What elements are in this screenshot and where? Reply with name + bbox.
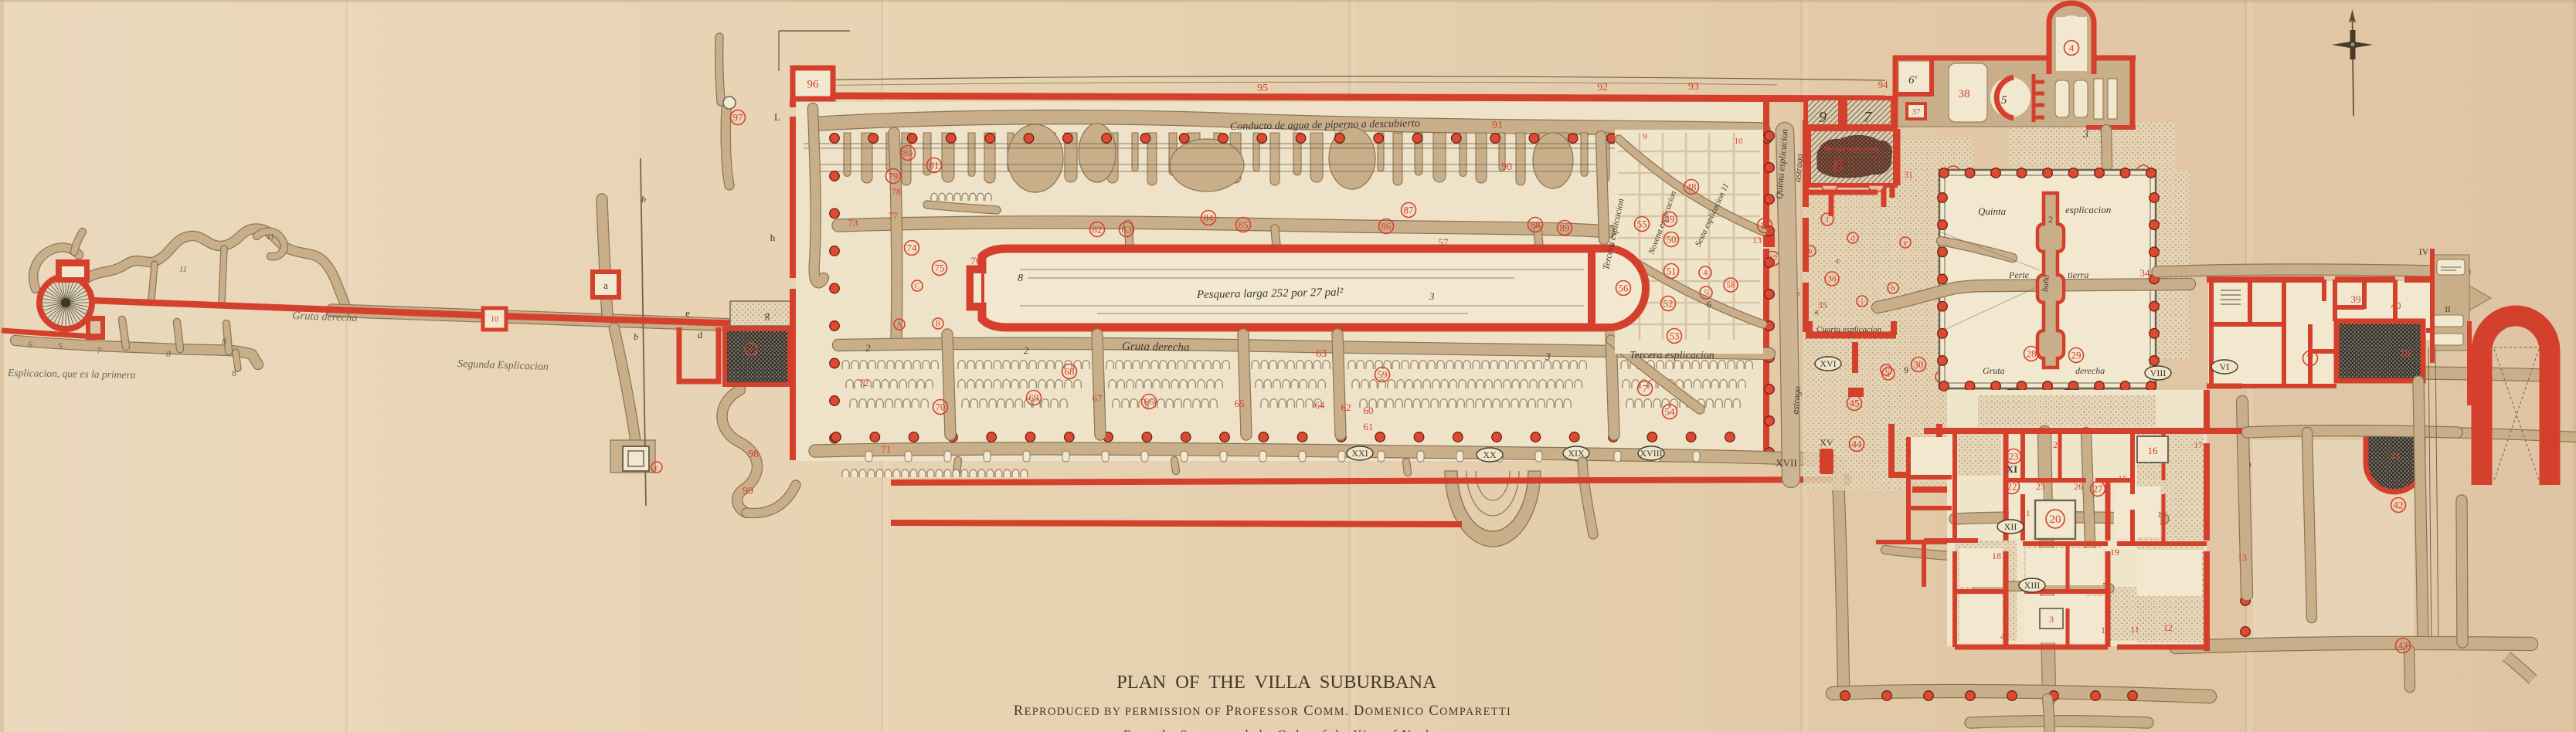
svg-text:83: 83 [1122,223,1132,235]
svg-text:45: 45 [1850,397,1860,408]
svg-text:29: 29 [2071,349,2082,361]
svg-text:69: 69 [1029,391,1039,403]
svg-text:XIII: XIII [2024,580,2041,591]
svg-text:9: 9 [1904,364,1908,375]
svg-text:52: 52 [1664,297,1674,309]
svg-text:12: 12 [1760,219,1770,231]
svg-text:8: 8 [166,348,171,359]
svg-text:8: 8 [1833,154,1843,176]
svg-text:37: 37 [1912,107,1922,117]
svg-text:39: 39 [2351,293,2361,305]
svg-text:26: 26 [2074,481,2083,492]
svg-text:d: d [1851,234,1855,242]
svg-text:54: 54 [1665,405,1676,417]
svg-text:49: 49 [1665,213,1675,225]
svg-text:2: 2 [865,342,871,354]
svg-text:V: V [2306,352,2314,364]
svg-text:tierra: tierra [2068,269,2088,280]
svg-text:73: 73 [848,217,858,229]
svg-text:84: 84 [1204,212,1215,223]
svg-text:baño: baño [2041,274,2051,292]
svg-text:e: e [685,307,690,319]
svg-text:14: 14 [2157,509,2166,520]
svg-text:VIII: VIII [2150,368,2166,378]
svg-text:13: 13 [2238,552,2247,563]
svg-text:72: 72 [859,377,869,388]
svg-text:c: c [1837,256,1840,266]
svg-text:22: 22 [2007,480,2017,492]
svg-text:From the Survey made by Order: From the Survey made by Order of the Kin… [1123,727,1442,732]
svg-text:1: 1 [1825,215,1830,225]
svg-text:85: 85 [1239,219,1249,230]
svg-text:A: A [896,320,902,329]
svg-text:76: 76 [971,255,982,266]
svg-text:35: 35 [1818,300,1827,310]
svg-text:5: 5 [1704,289,1708,298]
svg-text:XVII: XVII [1776,457,1796,469]
svg-text:36: 36 [1828,275,1837,284]
svg-text:66: 66 [1144,395,1155,407]
svg-text:XV: XV [1820,437,1833,448]
svg-text:IV: IV [2419,246,2429,257]
svg-text:b: b [634,331,638,342]
svg-text:28: 28 [2027,347,2037,359]
svg-text:61: 61 [1364,421,1374,432]
svg-text:90: 90 [1501,161,1512,173]
svg-text:89: 89 [1560,222,1570,233]
svg-text:Perte: Perte [2008,269,2030,280]
svg-text:a: a [603,280,608,291]
svg-text:41: 41 [2390,452,2401,463]
svg-text:20: 20 [2050,513,2061,526]
svg-text:94: 94 [1878,79,1889,90]
svg-text:16: 16 [2148,445,2159,456]
svg-text:99: 99 [743,486,753,497]
svg-text:63: 63 [1316,348,1327,360]
svg-text:Decima esplicacion: Decima esplicacion [1824,145,1879,153]
svg-text:4: 4 [2000,631,2005,642]
svg-text:42: 42 [2394,499,2404,510]
svg-text:96: 96 [807,78,820,90]
svg-text:XXI: XXI [1351,448,1368,459]
svg-text:62: 62 [1341,402,1351,413]
svg-text:55: 55 [1637,218,1647,229]
svg-text:Pesquera larga 252 por 27 pal²: Pesquera larga 252 por 27 pal² [1196,286,1344,301]
svg-text:e: e [1904,239,1908,247]
svg-text:11: 11 [267,232,274,242]
svg-text:30: 30 [1914,358,1924,370]
svg-text:3: 3 [1429,290,1435,302]
svg-text:64: 64 [1315,399,1326,411]
svg-text:10: 10 [491,316,498,324]
svg-text:15: 15 [2118,473,2127,484]
svg-text:10: 10 [2101,625,2110,635]
svg-text:68: 68 [1065,365,1075,377]
svg-text:L: L [774,111,780,123]
svg-text:93: 93 [1688,81,1699,93]
svg-text:47: 47 [1768,252,1779,264]
svg-text:i: i [1861,297,1864,306]
svg-text:esplicacion: esplicacion [2065,204,2111,215]
svg-text:REPRODUCED BY PERMISSION OF P: REPRODUCED BY PERMISSION OF PROFESSOR CO… [1014,703,1511,719]
svg-text:78: 78 [892,186,901,197]
svg-text:53: 53 [1670,330,1680,341]
svg-text:91: 91 [1492,120,1503,131]
svg-text:Gruta: Gruta [1983,365,2005,376]
svg-text:c: c [655,463,659,473]
svg-text:25: 25 [2036,481,2045,492]
svg-text:9: 9 [1819,109,1827,126]
svg-text:Esplicacion, que es la primera: Esplicacion, que es la primera [7,367,136,381]
svg-text:34: 34 [2140,267,2151,279]
svg-text:5: 5 [2001,94,2007,107]
svg-text:2: 2 [2048,214,2053,225]
svg-text:98: 98 [748,449,759,460]
svg-text:67: 67 [1093,392,1103,404]
svg-text:17: 17 [2194,441,2204,450]
svg-text:3: 3 [2082,129,2088,141]
svg-text:derecha: derecha [2075,365,2105,376]
svg-text:g: g [765,309,770,320]
svg-text:87: 87 [1404,204,1415,215]
svg-text:Gruta derecha: Gruta derecha [292,310,358,324]
svg-text:81: 81 [929,159,940,171]
svg-text:4: 4 [85,309,89,317]
svg-text:21: 21 [2022,509,2031,518]
svg-text:57: 57 [1439,236,1449,248]
svg-text:86: 86 [1381,220,1392,232]
svg-text:Cuarta esplicacion: Cuarta esplicacion [1816,325,1882,334]
svg-text:d: d [698,329,703,341]
svg-text:58: 58 [1727,281,1736,290]
svg-text:7: 7 [97,345,102,356]
svg-text:6: 6 [1707,299,1711,310]
svg-text:VI: VI [2220,361,2230,372]
svg-text:40: 40 [2391,300,2401,311]
svg-text:70: 70 [936,401,946,412]
svg-text:74: 74 [907,242,918,253]
svg-text:Tercera esplicacion: Tercera esplicacion [1630,350,1715,361]
svg-text:7: 7 [1864,109,1872,126]
svg-text:8: 8 [1018,273,1023,284]
svg-text:Gruta derecha: Gruta derecha [1122,341,1190,354]
svg-text:10: 10 [1735,137,1744,146]
svg-text:59: 59 [1378,368,1388,380]
svg-text:XII: XII [2004,521,2017,532]
svg-text:9: 9 [1643,132,1647,141]
svg-text:38: 38 [1959,88,1970,100]
svg-text:51: 51 [1667,265,1677,276]
svg-text:III: III [2401,347,2411,359]
svg-text:31: 31 [1904,169,1913,180]
svg-text:44: 44 [1852,438,1863,449]
svg-text:60: 60 [1364,405,1374,416]
svg-text:19: 19 [2110,547,2119,557]
svg-text:82: 82 [1093,223,1103,235]
svg-text:8: 8 [222,336,226,347]
svg-text:92: 92 [1597,82,1608,93]
svg-text:3: 3 [2049,614,2054,625]
svg-text:h: h [1891,284,1895,293]
svg-text:b: b [641,194,646,205]
svg-text:43: 43 [2398,639,2408,651]
svg-text:71: 71 [882,443,892,455]
svg-text:II: II [2445,305,2451,314]
svg-text:a: a [1815,307,1819,317]
svg-text:6′: 6′ [1908,74,1918,86]
svg-text:23: 23 [2009,450,2019,462]
svg-text:95: 95 [1257,83,1268,94]
svg-text:27: 27 [2093,483,2104,494]
svg-text:2: 2 [1024,344,1029,356]
svg-text:PLAN OF THE VILLA SUBURBANA: PLAN OF THE VILLA SUBURBANA [1116,672,1436,693]
svg-text:XI: XI [2007,463,2017,475]
svg-text:7: 7 [1643,382,1648,394]
svg-text:b: b [1809,247,1813,256]
svg-text:XX: XX [1483,449,1497,460]
svg-text:Quinta: Quinta [1978,205,2007,217]
svg-text:50: 50 [1667,233,1677,245]
svg-text:l: l [1885,366,1888,374]
svg-text:8: 8 [232,368,236,378]
svg-text:f: f [749,345,753,354]
svg-text:65: 65 [1235,398,1245,409]
svg-text:18: 18 [1992,551,2001,561]
svg-text:6: 6 [28,339,32,350]
svg-text:11: 11 [2130,624,2139,635]
svg-text:XVI: XVI [1820,358,1836,369]
svg-text:77: 77 [889,210,898,221]
svg-text:97: 97 [733,111,744,123]
svg-text:88: 88 [1531,219,1541,230]
svg-text:80: 80 [903,147,913,158]
svg-text:56: 56 [1619,282,1630,293]
svg-text:4: 4 [2069,42,2075,53]
svg-text:75: 75 [935,262,945,273]
svg-text:h: h [770,232,776,243]
svg-text:24: 24 [2053,439,2062,450]
svg-text:13: 13 [1752,235,1762,246]
svg-text:XVIII: XVIII [1640,448,1662,459]
svg-text:C: C [915,282,920,290]
svg-text:48: 48 [1687,181,1697,192]
svg-text:12: 12 [2163,622,2173,633]
svg-text:B: B [936,320,941,328]
svg-text:11: 11 [179,265,187,274]
svg-text:4: 4 [1703,269,1708,278]
svg-text:79: 79 [889,170,899,181]
svg-text:5: 5 [58,341,63,351]
